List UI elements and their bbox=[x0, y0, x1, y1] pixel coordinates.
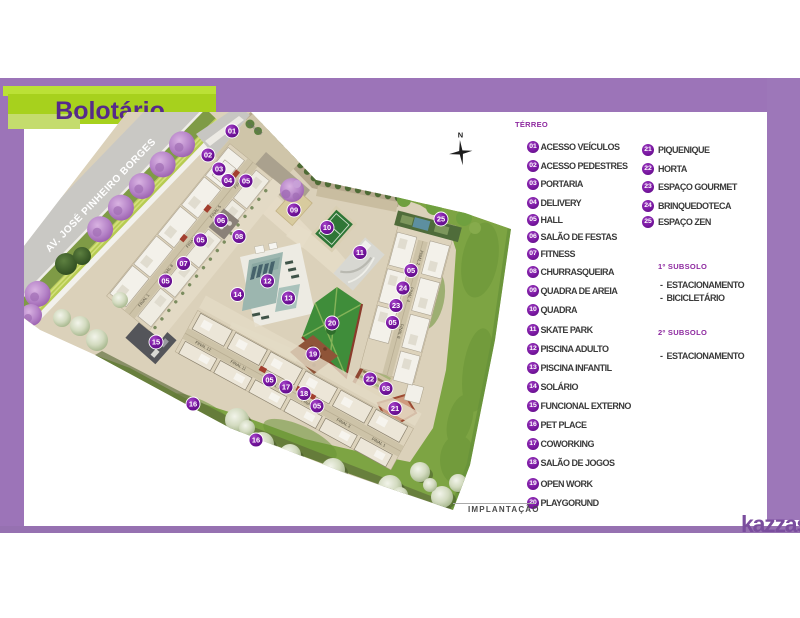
svg-text:18: 18 bbox=[300, 389, 308, 398]
svg-text:01: 01 bbox=[228, 127, 236, 136]
svg-text:14: 14 bbox=[233, 290, 242, 299]
svg-text:08: 08 bbox=[235, 232, 243, 241]
svg-text:05: 05 bbox=[161, 277, 169, 286]
svg-text:05: 05 bbox=[242, 177, 250, 186]
svg-text:03: 03 bbox=[215, 165, 223, 174]
svg-text:22: 22 bbox=[366, 375, 374, 384]
svg-text:17: 17 bbox=[282, 383, 290, 392]
svg-text:05: 05 bbox=[196, 236, 204, 245]
svg-text:05: 05 bbox=[388, 318, 396, 327]
svg-text:05: 05 bbox=[407, 266, 415, 275]
svg-text:04: 04 bbox=[224, 176, 233, 185]
svg-text:06: 06 bbox=[217, 216, 225, 225]
svg-text:25: 25 bbox=[437, 215, 445, 224]
svg-text:12: 12 bbox=[263, 277, 271, 286]
svg-text:05: 05 bbox=[313, 402, 321, 411]
svg-text:10: 10 bbox=[323, 223, 331, 232]
svg-text:13: 13 bbox=[284, 294, 292, 303]
svg-text:09: 09 bbox=[290, 206, 298, 215]
svg-text:11: 11 bbox=[356, 248, 364, 257]
svg-text:24: 24 bbox=[399, 284, 408, 293]
svg-text:16: 16 bbox=[189, 400, 197, 409]
svg-text:23: 23 bbox=[392, 301, 400, 310]
svg-text:02: 02 bbox=[204, 151, 212, 160]
svg-text:07: 07 bbox=[179, 259, 187, 268]
svg-text:08: 08 bbox=[382, 384, 390, 393]
svg-text:05: 05 bbox=[265, 376, 273, 385]
svg-text:16: 16 bbox=[252, 436, 260, 445]
svg-text:20: 20 bbox=[328, 319, 336, 328]
svg-text:19: 19 bbox=[309, 350, 317, 359]
svg-text:N: N bbox=[458, 131, 463, 140]
svg-text:21: 21 bbox=[391, 404, 399, 413]
svg-text:15: 15 bbox=[152, 338, 160, 347]
